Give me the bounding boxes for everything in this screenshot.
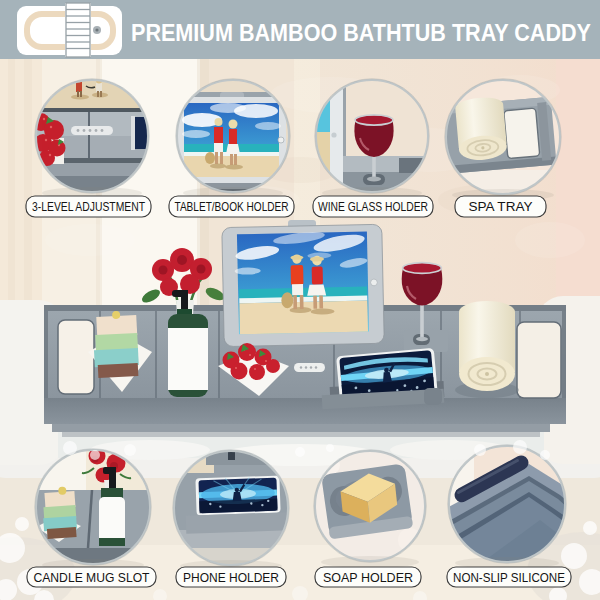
svg-text:SPA TRAY: SPA TRAY bbox=[469, 200, 534, 214]
svg-text:3-LEVEL ADJUSTMENT: 3-LEVEL ADJUSTMENT bbox=[32, 200, 145, 214]
svg-text:PREMIUM BAMBOO BATHTUB TRAY CA: PREMIUM BAMBOO BATHTUB TRAY CADDY bbox=[131, 20, 591, 46]
svg-text:WINE GLASS HOLDER: WINE GLASS HOLDER bbox=[318, 200, 428, 214]
svg-text:PHONE HOLDER: PHONE HOLDER bbox=[183, 571, 279, 585]
svg-text:TABLET/BOOK HOLDER: TABLET/BOOK HOLDER bbox=[175, 200, 289, 214]
svg-text:CANDLE MUG SLOT: CANDLE MUG SLOT bbox=[34, 571, 150, 585]
svg-text:SOAP HOLDER: SOAP HOLDER bbox=[323, 571, 413, 585]
svg-text:NON-SLIP SILICONE: NON-SLIP SILICONE bbox=[453, 571, 565, 585]
